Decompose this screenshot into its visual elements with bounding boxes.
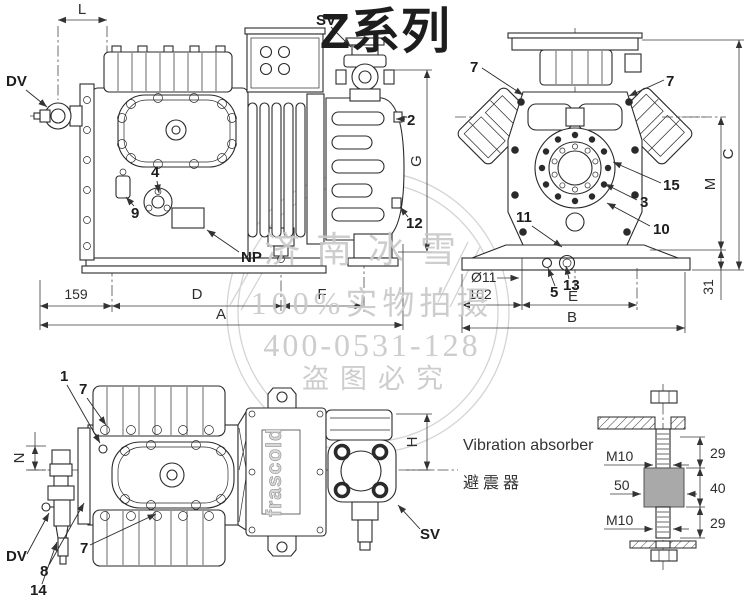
brand-logo: frascold: [263, 427, 286, 517]
dim-label-A: A: [216, 306, 226, 323]
callout-11: 11: [516, 209, 532, 226]
dim-label-m10-bottom: M10: [606, 512, 633, 528]
dim-label-B: B: [567, 309, 577, 326]
dim-label-D: D: [192, 286, 203, 303]
dim-label-29-top: 29: [710, 445, 726, 461]
page-title: Z系列: [320, 5, 451, 59]
drawing-canvas: L G 159 D F A DV SV 4 9 NP 2 12: [0, 0, 752, 603]
vibration-absorber-detail: Vibration absorber 避震器: [463, 384, 726, 570]
watermark-company: 济南冰雪: [264, 230, 472, 270]
dim-label-L: L: [78, 1, 86, 18]
callout-7-lower: 7: [80, 540, 88, 557]
absorber-label-en: Vibration absorber: [463, 437, 594, 454]
callout-7-right: 7: [666, 73, 674, 90]
dim-label-29-bottom: 29: [710, 515, 726, 531]
callout-9: 9: [131, 205, 139, 222]
callout-15: 15: [663, 177, 680, 194]
dim-label-159: 159: [64, 286, 88, 302]
callout-14: 14: [30, 582, 47, 599]
dim-label-C: C: [720, 148, 737, 159]
technical-drawing-page: L G 159 D F A DV SV 4 9 NP 2 12: [0, 0, 752, 603]
callout-7-left: 7: [470, 59, 478, 76]
dim-label-H: H: [404, 437, 421, 448]
dim-label-40: 40: [710, 480, 726, 496]
callout-5: 5: [550, 284, 558, 301]
callout-7-upper: 7: [79, 381, 87, 398]
callout-np: NP: [241, 249, 262, 266]
watermark-slogan: 100%实物拍摄: [251, 285, 494, 321]
absorber-label-zh: 避震器: [463, 474, 523, 492]
top-view-drawing: frascold: [28, 386, 458, 566]
callout-4: 4: [151, 164, 160, 181]
callout-10: 10: [653, 221, 670, 238]
callout-13: 13: [563, 277, 580, 294]
callout-1: 1: [60, 368, 68, 385]
watermark-text: 济南冰雪 100%实物拍摄 400-0531-128 盗图必究: [251, 230, 494, 394]
dim-label-31: 31: [700, 279, 716, 295]
dim-label-M: M: [702, 178, 719, 191]
end-view-drawing: [455, 28, 705, 288]
dim-label-dia11: Ø11: [471, 269, 497, 285]
callout-sv-bottom: SV: [420, 526, 440, 543]
watermark-warning: 盗图必究: [302, 364, 454, 394]
dim-label-50: 50: [614, 477, 630, 493]
dim-label-N: N: [11, 453, 28, 464]
dim-label-G: G: [408, 155, 425, 167]
callout-dv: DV: [6, 73, 27, 90]
dim-label-m10-top: M10: [606, 448, 633, 464]
callout-2: 2: [407, 112, 415, 129]
watermark-phone: 400-0531-128: [263, 327, 480, 363]
callout-3: 3: [640, 194, 648, 211]
callout-dv-bottom: DV: [6, 548, 27, 565]
